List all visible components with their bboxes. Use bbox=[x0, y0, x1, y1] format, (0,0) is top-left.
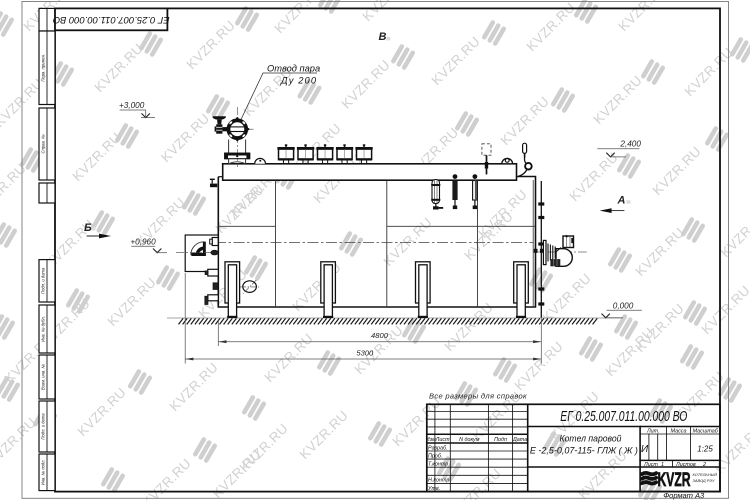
svg-text:Дата: Дата bbox=[512, 437, 527, 443]
svg-text:Подп. и дата: Подп. и дата bbox=[40, 413, 45, 440]
svg-text:Справ. №: Справ. № bbox=[40, 134, 45, 153]
svg-text:0,000: 0,000 bbox=[613, 301, 634, 310]
svg-text:Лист: Лист bbox=[643, 462, 658, 468]
svg-text:Листов: Листов bbox=[675, 462, 696, 468]
svg-text:5300: 5300 bbox=[356, 348, 374, 357]
svg-text:+0,960: +0,960 bbox=[130, 237, 156, 246]
svg-text:Изм: Изм bbox=[426, 437, 436, 443]
svg-text:Н.контр: Н.контр bbox=[428, 478, 449, 484]
svg-text:Е -2,5-0,07-115- ГЛЖ ( Ж ): Е -2,5-0,07-115- ГЛЖ ( Ж ) bbox=[530, 446, 638, 456]
svg-text:Перв. примен.: Перв. примен. bbox=[40, 54, 45, 82]
svg-text:В: В bbox=[379, 31, 387, 43]
svg-text:Лит.: Лит. bbox=[646, 429, 660, 435]
svg-text:Т.контр: Т.контр bbox=[428, 462, 448, 468]
svg-text:Инв. № дубл.: Инв. № дубл. bbox=[40, 316, 45, 342]
svg-text:Инв. № подл.: Инв. № подл. bbox=[40, 459, 45, 485]
svg-text:КОТЕЛЬНЫЙ: КОТЕЛЬНЫЙ bbox=[693, 472, 718, 477]
svg-text:Б: Б bbox=[84, 222, 92, 234]
svg-text:Масштаб: Масштаб bbox=[693, 429, 719, 435]
svg-text:ЗАВОД РЭУ: ЗАВОД РЭУ bbox=[693, 478, 716, 483]
svg-text:ЕГ 0.25.007.011.00.000 ВО: ЕГ 0.25.007.011.00.000 ВО bbox=[52, 14, 169, 25]
svg-text:N докум: N докум bbox=[459, 437, 480, 443]
svg-text:+3,000: +3,000 bbox=[119, 101, 145, 110]
svg-text:1:25: 1:25 bbox=[697, 445, 713, 454]
svg-text:Лист: Лист bbox=[435, 437, 450, 443]
svg-text:Формат А3: Формат А3 bbox=[663, 491, 705, 500]
svg-text:Отвод пара: Отвод пара bbox=[267, 64, 320, 74]
svg-text:Разраб.: Разраб. bbox=[428, 445, 448, 451]
svg-text:KVZR: KVZR bbox=[658, 469, 691, 491]
svg-text:А: А bbox=[617, 194, 626, 206]
svg-text:Взам. инв. №: Взам. инв. № bbox=[40, 364, 45, 390]
svg-text:4800: 4800 bbox=[371, 331, 389, 340]
svg-text:Ду 200: Ду 200 bbox=[280, 76, 317, 86]
svg-text:Подп: Подп bbox=[494, 437, 507, 443]
svg-text:ЕГ 0.25.007.011.00.000 ВО: ЕГ 0.25.007.011.00.000 ВО bbox=[560, 408, 687, 425]
svg-text:2: 2 bbox=[702, 462, 706, 468]
svg-text:И: И bbox=[641, 444, 649, 455]
svg-text:Котел паровой: Котел паровой bbox=[560, 434, 622, 444]
svg-text:Утв.: Утв. bbox=[427, 486, 440, 492]
svg-text:Все размеры для справок: Все размеры для справок bbox=[429, 392, 527, 401]
svg-text:Подп. и дата: Подп. и дата bbox=[40, 267, 45, 294]
svg-text:1: 1 bbox=[661, 462, 664, 468]
svg-text:Масса: Масса bbox=[671, 429, 687, 435]
svg-text:2,400: 2,400 bbox=[619, 139, 641, 148]
svg-text:Проб.: Проб. bbox=[428, 453, 442, 459]
